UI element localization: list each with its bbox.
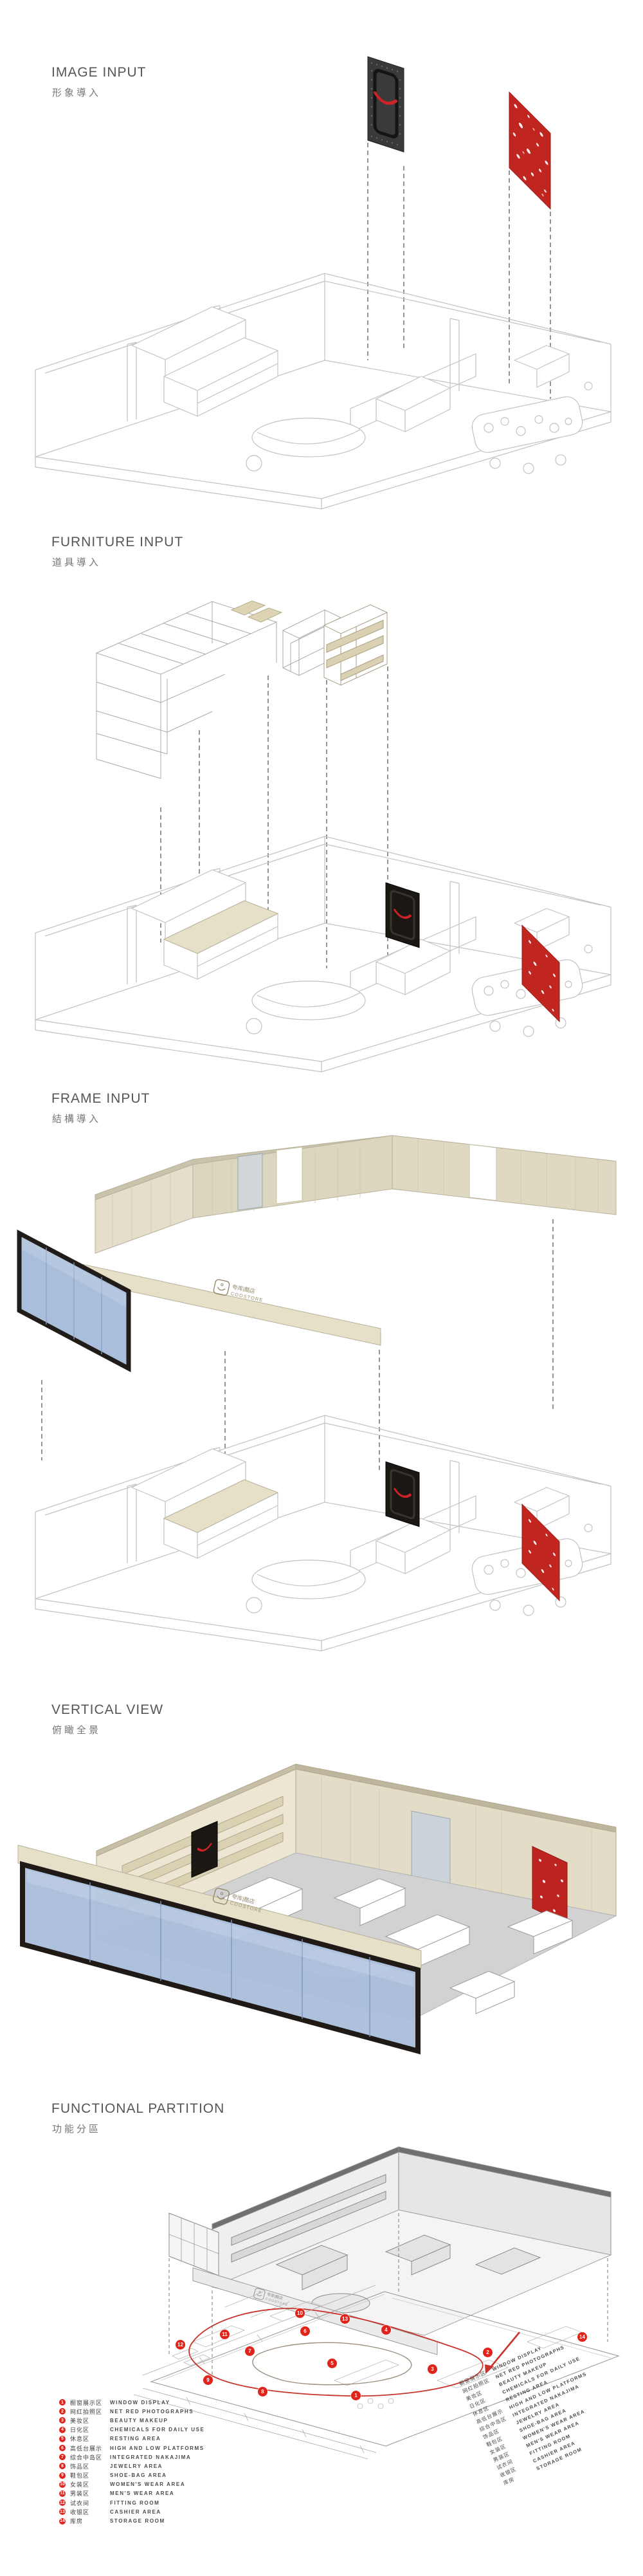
legend-label-en: CASHIER AREA [110, 2509, 161, 2515]
legend-item: 1 橱窗展示区 WINDOW DISPLAY [59, 2398, 204, 2407]
legend-label-en: WOMEN'S WEAR AREA [110, 2481, 185, 2487]
legend-label-en: WINDOW DISPLAY [110, 2400, 170, 2406]
legend-item: 10 女装区 WOMEN'S WEAR AREA [59, 2480, 204, 2489]
legend-item: 12 试衣间 FITTING ROOM [59, 2498, 204, 2507]
legend-label-zh: 综合中岛区 [70, 2453, 110, 2461]
legend-number-dot: 12 [59, 2499, 66, 2506]
legend-number-dot: 10 [59, 2481, 66, 2488]
design-presentation-board: { "brand": { "logo_text": "COOSTORE", "l… [0, 0, 643, 2576]
furniture-input-illustration [35, 601, 611, 1072]
legend-item: 3 美妆区 BEAUTY MAKEUP [59, 2416, 204, 2425]
legend-label-zh: 日化区 [70, 2425, 110, 2434]
plan-badge-10: 10 [295, 2308, 305, 2318]
wireframe-room [35, 273, 611, 509]
plan-badge-11: 11 [220, 2330, 230, 2339]
plan-badge-1: 1 [351, 2391, 361, 2400]
plan-badge-3: 3 [428, 2364, 437, 2374]
legend: 1 橱窗展示区 WINDOW DISPLAY 2 网红拍照区 NET RED P… [59, 2398, 204, 2526]
legend-label-zh: 橱窗展示区 [70, 2398, 110, 2407]
plan-badge-9: 9 [203, 2375, 213, 2385]
legend-label-en: CHEMICALS FOR DAILY USE [110, 2427, 204, 2433]
plan-badge-2: 2 [483, 2348, 493, 2357]
legend-label-en: SHOE-BAG AREA [110, 2472, 167, 2478]
legend-label-zh: 高低台展示 [70, 2444, 110, 2452]
legend-label-zh: 女装区 [70, 2480, 110, 2489]
legend-label-zh: 男装区 [70, 2489, 110, 2498]
legend-item: 4 日化区 CHEMICALS FOR DAILY USE [59, 2425, 204, 2434]
legend-label-en: BEAUTY MAKEUP [110, 2418, 168, 2424]
gray-store-model [169, 2147, 611, 2355]
legend-number-dot: 7 [59, 2454, 66, 2460]
plan-badge-14: 14 [577, 2332, 587, 2342]
floating-shelving-solid [324, 605, 387, 685]
artwork-panel-dark [368, 57, 404, 152]
legend-label-en: RESTING AREA [110, 2436, 161, 2442]
legend-number-dot: 1 [59, 2399, 66, 2406]
legend-label-zh: 库房 [70, 2517, 110, 2525]
glass-storefront [19, 1233, 129, 1368]
placed-dark-panel [386, 1462, 419, 1527]
legend-label-zh: 鞋包区 [70, 2471, 110, 2479]
plan-badge-12: 12 [176, 2340, 185, 2350]
legend-number-dot: 11 [59, 2490, 66, 2497]
legend-number-dot: 2 [59, 2408, 66, 2415]
vertical-view-illustration [18, 1764, 616, 2051]
plan-badge-5: 5 [327, 2359, 337, 2368]
legend-number-dot: 3 [59, 2417, 66, 2424]
plan-badge-6: 6 [300, 2326, 310, 2336]
frame-input-illustration [19, 1136, 616, 1651]
legend-label-en: FITTING ROOM [110, 2500, 159, 2506]
legend-item: 13 收银区 CASHIER AREA [59, 2507, 204, 2516]
legend-number-dot: 8 [59, 2463, 66, 2469]
legend-number-dot: 13 [59, 2508, 66, 2515]
legend-item: 5 休息区 RESTING AREA [59, 2434, 204, 2443]
legend-label-en: MEN'S WEAR AREA [110, 2490, 174, 2496]
floating-shelving-wireframe [96, 601, 341, 778]
legend-label-zh: 收银区 [70, 2508, 110, 2516]
plan-badge-8: 8 [258, 2387, 267, 2397]
legend-item: 7 综合中岛区 INTEGRATED NAKAJIMA [59, 2452, 204, 2461]
legend-label-zh: 美妆区 [70, 2416, 110, 2425]
plan-badge-7: 7 [245, 2346, 255, 2356]
legend-label-zh: 网红拍照区 [70, 2407, 110, 2416]
legend-label-zh: 休息区 [70, 2434, 110, 2443]
legend-label-en: JEWELRY AREA [110, 2463, 163, 2469]
placed-dark-panel [386, 883, 419, 948]
legend-label-zh: 饰品区 [70, 2462, 110, 2470]
legend-label-zh: 试衣间 [70, 2499, 110, 2507]
legend-item: 14 库房 STORAGE ROOM [59, 2516, 204, 2525]
legend-item: 11 男装区 MEN'S WEAR AREA [59, 2489, 204, 2498]
legend-item: 8 饰品区 JEWELRY AREA [59, 2461, 204, 2470]
legend-number-dot: 14 [59, 2518, 66, 2525]
legend-label-en: INTEGRATED NAKAJIMA [110, 2454, 191, 2460]
axonometric-diagram-canvas: 夸库|酷店 COOSTORE [0, 0, 643, 2576]
leader-line-dark-panel [368, 143, 404, 360]
legend-label-en: HIGH AND LOW PLATFORMS [110, 2445, 204, 2451]
legend-label-en: NET RED PHOTOGRAPHS [110, 2409, 194, 2415]
plan-badge-13: 13 [340, 2314, 350, 2324]
legend-item: 9 鞋包区 SHOE-BAG AREA [59, 2471, 204, 2480]
legend-number-dot: 4 [59, 2427, 66, 2433]
legend-item: 2 网红拍照区 NET RED PHOTOGRAPHS [59, 2407, 204, 2416]
legend-number-dot: 9 [59, 2472, 66, 2479]
artwork-panel-red [509, 92, 550, 209]
legend-number-dot: 6 [59, 2445, 66, 2451]
legend-label-en: STORAGE ROOM [110, 2518, 165, 2524]
legend-number-dot: 5 [59, 2436, 66, 2442]
legend-item: 6 高低台展示 HIGH AND LOW PLATFORMS [59, 2443, 204, 2452]
plan-badge-4: 4 [381, 2325, 391, 2335]
image-input-illustration [35, 57, 611, 509]
